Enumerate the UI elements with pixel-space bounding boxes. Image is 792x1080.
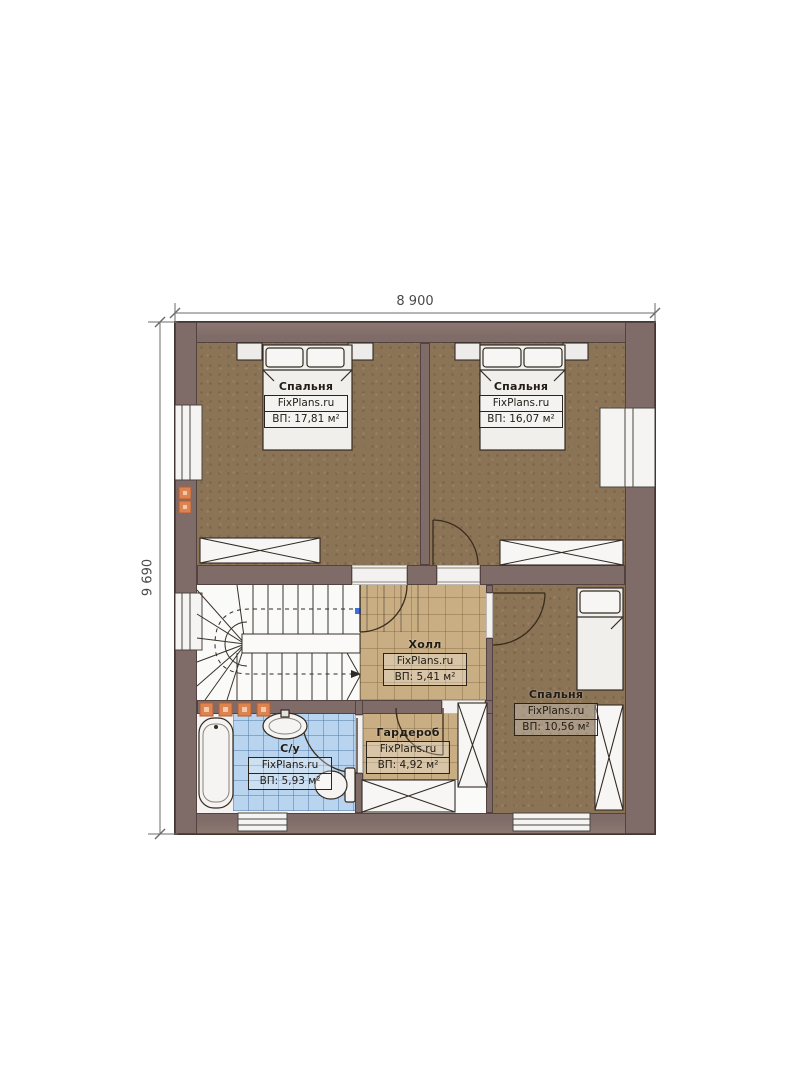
room-area: ВП: 5,41 м²: [384, 670, 466, 685]
room-name: Спальня: [279, 380, 333, 394]
room-info-box: FixPlans.ru ВП: 17,81 м²: [264, 395, 348, 428]
window-left-stairs: [175, 593, 202, 650]
room-name: Гардероб: [376, 726, 439, 740]
nightstand: [455, 343, 480, 360]
room-info-box: FixPlans.ru ВП: 10,56 м²: [514, 703, 598, 736]
nightstand: [237, 343, 262, 360]
room-name: С/у: [280, 742, 300, 756]
bathtub: [199, 718, 233, 808]
stair-winders: [197, 585, 245, 700]
brand-text: FixPlans.ru: [265, 396, 347, 412]
dimension-left-label: 9 690: [141, 548, 156, 608]
room-area: ВП: 16,07 м²: [480, 412, 562, 427]
wardrobe-bedroom-bottom: [595, 705, 623, 810]
window-right: [600, 408, 655, 487]
stair-treads-lower: [237, 653, 360, 700]
closet-under-wardrobe-room: [362, 780, 455, 812]
stair-treads-upper: [253, 585, 343, 634]
room-info-box: FixPlans.ru ВП: 16,07 м²: [479, 395, 563, 428]
label-bedroom-top-right: Спальня FixPlans.ru ВП: 16,07 м²: [479, 380, 563, 428]
room-info-box: FixPlans.ru ВП: 4,92 м²: [366, 741, 450, 774]
dimension-top-label: 8 900: [355, 294, 475, 309]
window-bottom-left: [238, 813, 287, 831]
wardrobe-bedroom-top-left: [200, 538, 320, 563]
brand-text: FixPlans.ru: [515, 704, 597, 720]
door-bedroom-top-right: [433, 520, 478, 565]
room-info-box: FixPlans.ru ВП: 5,93 м²: [248, 757, 332, 790]
floor-plan-page: 8 900 9 690: [0, 0, 792, 1080]
room-name: Спальня: [529, 688, 583, 702]
window-bottom-right: [513, 813, 590, 831]
brand-text: FixPlans.ru: [480, 396, 562, 412]
nightstand: [563, 343, 588, 360]
label-bedroom-bottom: Спальня FixPlans.ru ВП: 10,56 м²: [514, 688, 598, 736]
room-area: ВП: 17,81 м²: [265, 412, 347, 427]
closet-tall-center: [458, 703, 487, 787]
wardrobe-bedroom-top-right: [500, 540, 623, 565]
window-left-top: [175, 405, 202, 480]
room-info-box: FixPlans.ru ВП: 5,41 м²: [383, 653, 467, 686]
room-area: ВП: 10,56 м²: [515, 720, 597, 735]
brand-text: FixPlans.ru: [249, 758, 331, 774]
room-area: ВП: 4,92 м²: [367, 758, 449, 773]
stair-landing: [242, 634, 360, 653]
label-bathroom: С/у FixPlans.ru ВП: 5,93 м²: [248, 742, 332, 790]
stair-treads-hall: [367, 585, 418, 632]
door-thresholds: [352, 568, 480, 582]
door-bedroom-bottom: [493, 593, 545, 645]
label-hall: Холл FixPlans.ru ВП: 5,41 м²: [383, 638, 467, 686]
room-name: Холл: [409, 638, 442, 652]
single-bed: [577, 588, 623, 690]
brand-text: FixPlans.ru: [367, 742, 449, 758]
room-area: ВП: 5,93 м²: [249, 774, 331, 789]
label-bedroom-top-left: Спальня FixPlans.ru ВП: 17,81 м²: [264, 380, 348, 428]
brand-text: FixPlans.ru: [384, 654, 466, 670]
label-wardrobe: Гардероб FixPlans.ru ВП: 4,92 м²: [366, 726, 450, 774]
room-name: Спальня: [494, 380, 548, 394]
